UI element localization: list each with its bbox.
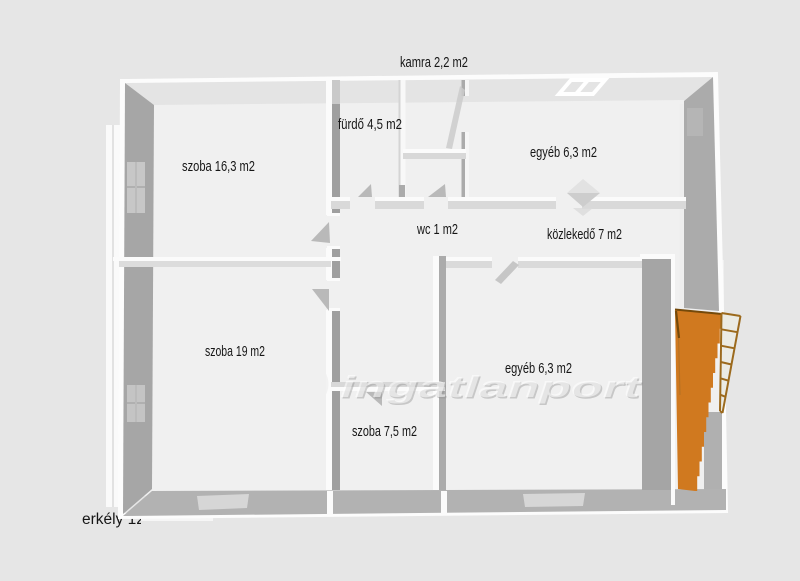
svg-text:kamra 2,2 m2: kamra 2,2 m2	[400, 55, 468, 71]
svg-text:közlekedő 7 m2: közlekedő 7 m2	[547, 227, 622, 243]
svg-text:szoba 7,5 m2: szoba 7,5 m2	[352, 424, 417, 440]
svg-text:szoba 16,3 m2: szoba 16,3 m2	[182, 159, 255, 175]
svg-text:egyéb 6,3 m2: egyéb 6,3 m2	[505, 361, 572, 377]
svg-text:egyéb 6,3 m2: egyéb 6,3 m2	[530, 145, 597, 161]
svg-text:wc 1 m2: wc 1 m2	[416, 222, 458, 238]
svg-text:ingatlanport: ingatlanport	[340, 369, 643, 404]
svg-text:szoba 19 m2: szoba 19 m2	[205, 344, 265, 360]
svg-text:fürdő 4,5 m2: fürdő 4,5 m2	[338, 117, 402, 133]
